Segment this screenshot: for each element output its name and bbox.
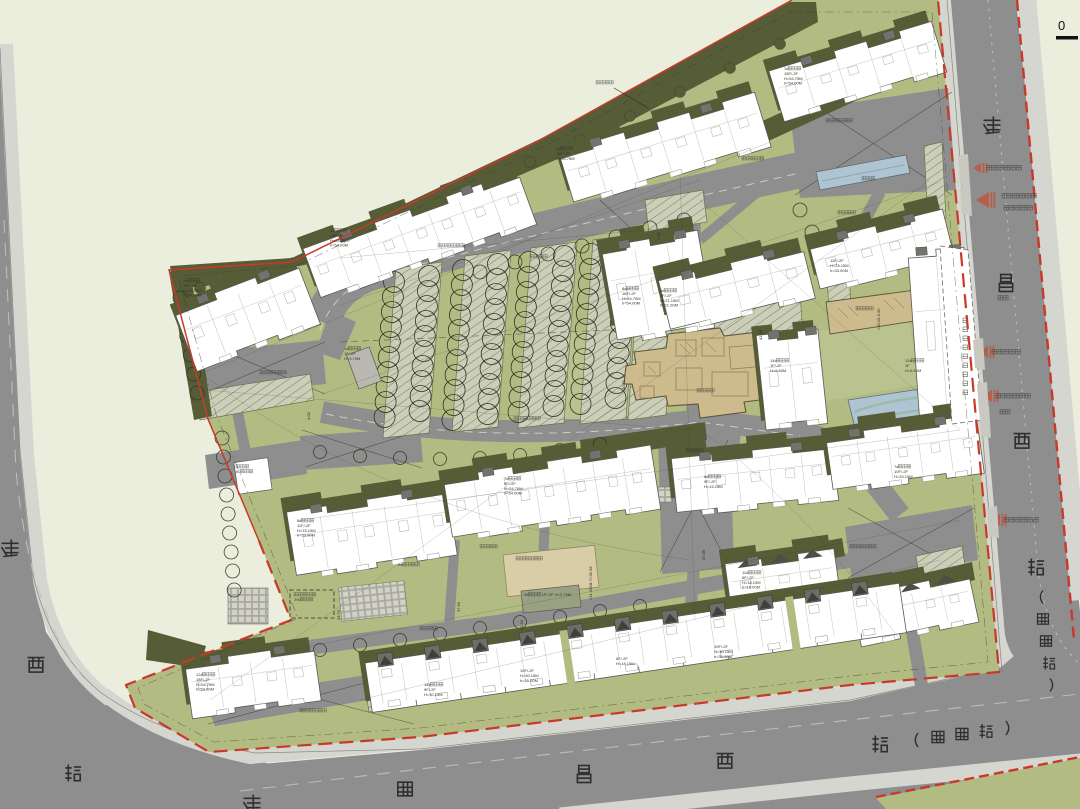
svg-text:H=3.75M: H=3.75M: [344, 356, 360, 361]
svg-text:H=18.15M: H=18.15M: [616, 661, 635, 666]
svg-text:H=15.15M: H=15.15M: [704, 484, 723, 489]
svg-text:h=21.00M: h=21.00M: [660, 303, 678, 308]
svg-text:7.45: 7.45: [656, 231, 661, 240]
svg-text:h=54.00M: h=54.00M: [330, 243, 348, 248]
svg-text:h=18.00M: h=18.00M: [742, 585, 760, 590]
svg-text:2#: 2#: [398, 562, 403, 567]
svg-text:>33.15-3.00: >33.15-3.00: [876, 308, 881, 330]
svg-text:h=54.00M: h=54.00M: [183, 293, 201, 298]
svg-text:40.51: 40.51: [621, 379, 626, 390]
svg-text:h=54.00M: h=54.00M: [504, 491, 522, 496]
svg-text:h=30.00M: h=30.00M: [714, 654, 732, 659]
svg-text:h=54.00M: h=54.00M: [622, 301, 640, 306]
svg-text:0: 0: [1058, 18, 1065, 33]
svg-text:3#: 3#: [524, 592, 529, 597]
svg-text:4.00: 4.00: [306, 411, 311, 420]
svg-text:H=6.60M: H=6.60M: [905, 368, 921, 373]
svg-text:H=30.15M: H=30.15M: [424, 692, 443, 697]
svg-text:31.34: 31.34: [519, 619, 524, 630]
svg-text:h=54.00M: h=54.00M: [784, 81, 802, 86]
svg-text:h=33.00M: h=33.00M: [297, 533, 315, 538]
svg-text:h=33.00M: h=33.00M: [830, 268, 848, 273]
svg-text:h=30.00M: h=30.00M: [520, 678, 538, 683]
svg-text:H=54.75M: H=54.75M: [556, 156, 575, 161]
svg-text:H=6.60M: H=6.60M: [770, 368, 786, 373]
svg-text:41.94: 41.94: [758, 329, 763, 340]
svg-text:33.75: 33.75: [336, 609, 341, 620]
svg-text:H=33.15M: H=33.15M: [894, 474, 913, 479]
svg-text:60: 60: [236, 469, 241, 474]
svg-text:h=54.00M: h=54.00M: [196, 687, 214, 692]
svg-text:1F/-2F H=3.75M: 1F/-2F H=3.75M: [542, 592, 571, 597]
svg-text:37.85: 37.85: [701, 549, 706, 560]
svg-text:>21.15M1.7>32.58: >21.15M1.7>32.58: [588, 566, 593, 600]
svg-text:37.60: 37.60: [456, 601, 461, 612]
